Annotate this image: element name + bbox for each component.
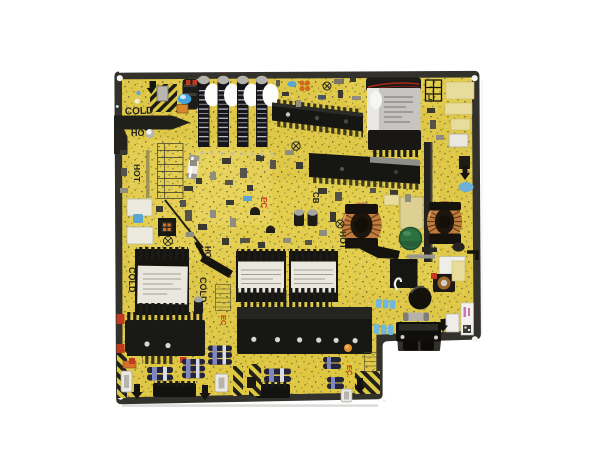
svg-text:L: L: [428, 95, 433, 102]
svg-text:EC: EC: [219, 315, 228, 326]
svg-text:HOT: HOT: [203, 246, 212, 263]
svg-text:HOT: HOT: [338, 231, 348, 250]
svg-text:HOT: HOT: [132, 164, 142, 183]
svg-text:EC: EC: [259, 197, 268, 208]
svg-text:EC: EC: [345, 365, 354, 376]
